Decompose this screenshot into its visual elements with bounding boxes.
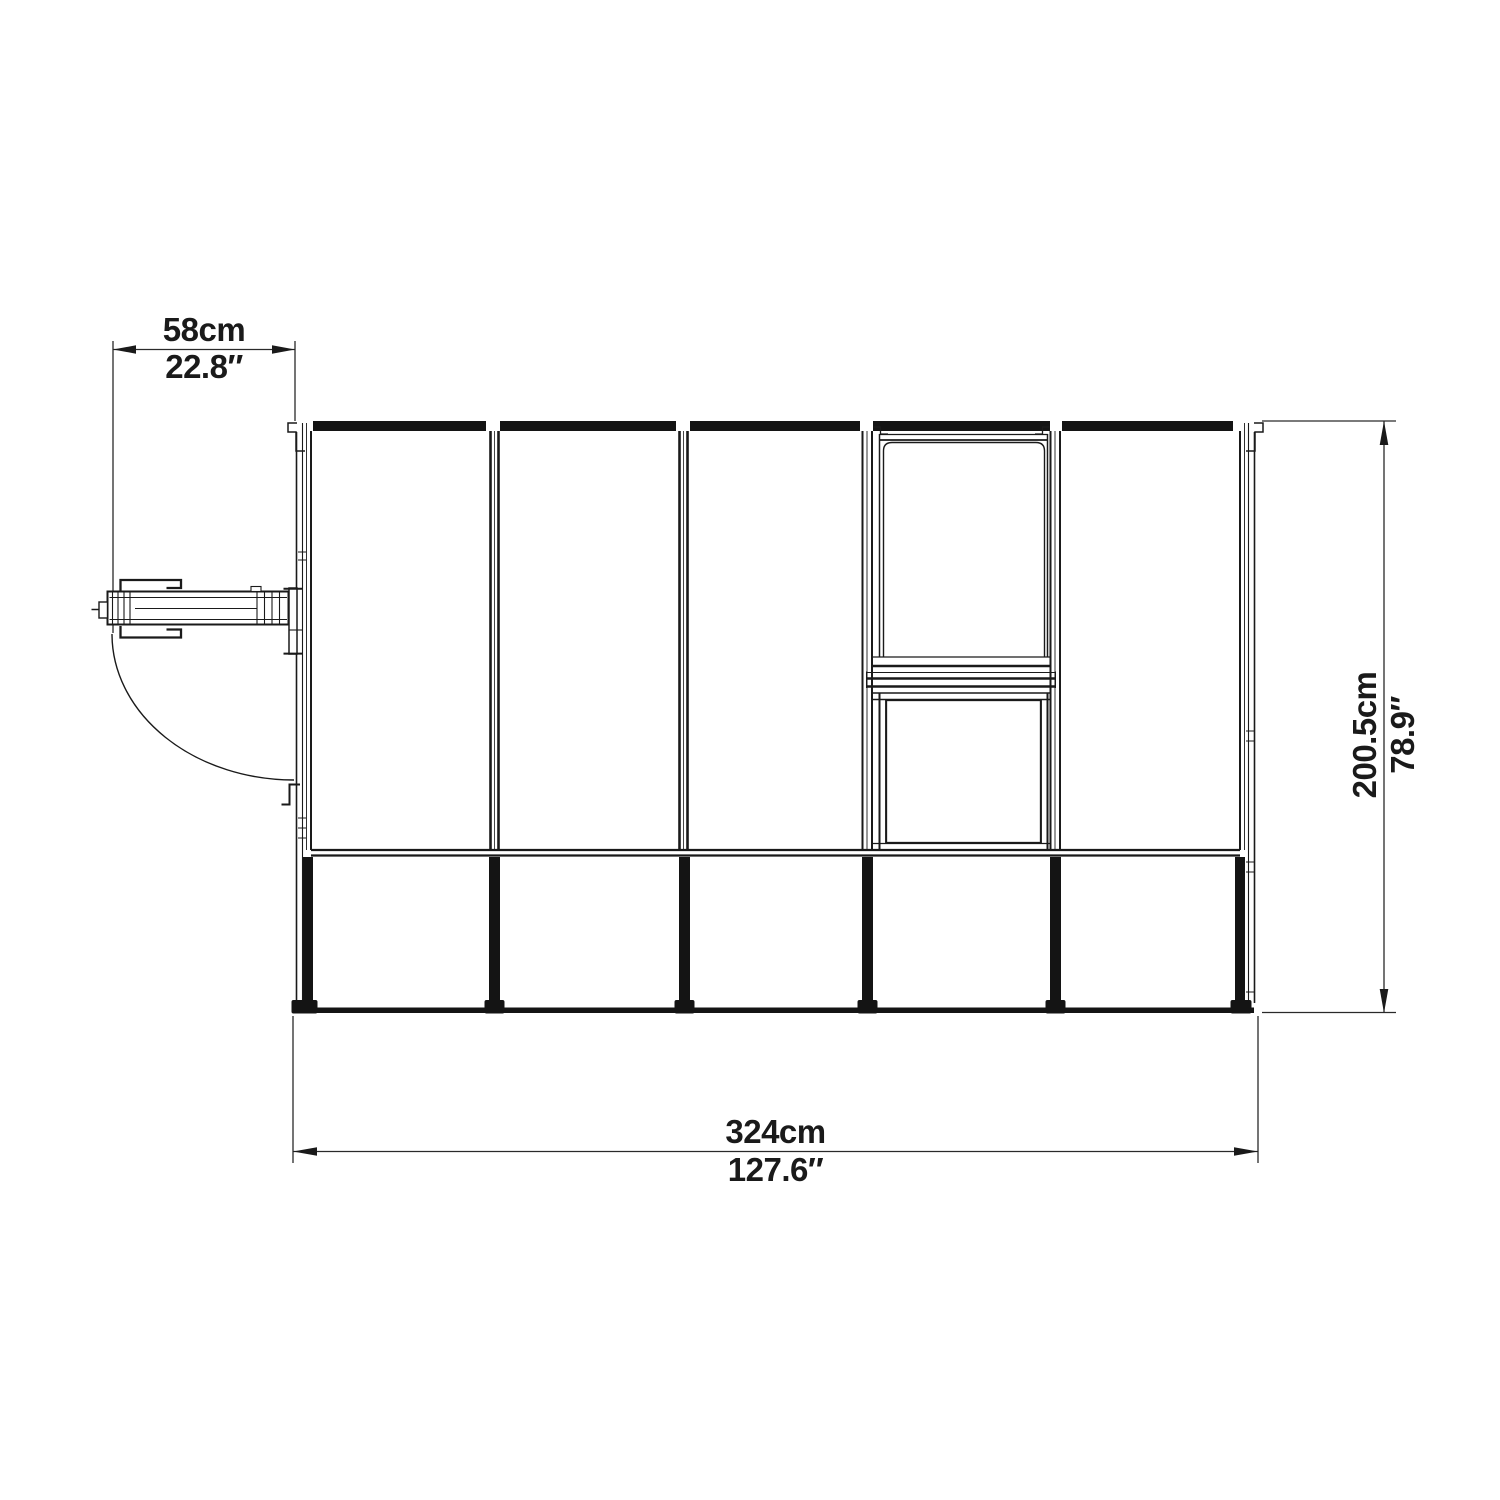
- greenhouse-dimension-diagram: 58cm 22.8″ 324cm 127.6″ 200.5cm 78.9″: [0, 0, 1500, 1500]
- door-edge-cap: [99, 602, 108, 618]
- top-rail: [313, 421, 1233, 431]
- vent-sill-bar: [866, 672, 1056, 689]
- dimension-label-overall-width: 324cm 127.6″: [293, 1113, 1258, 1189]
- upper-mullion-1: [491, 431, 499, 850]
- arrowhead-top: [1380, 421, 1389, 445]
- line-drawing: [0, 0, 1500, 1500]
- upper-mullion-2: [680, 431, 688, 850]
- door-roller-bump: [251, 587, 261, 592]
- door-opening-imperial: 22.8″: [113, 348, 295, 385]
- overall-width-metric: 324cm: [293, 1113, 1258, 1151]
- arrowhead-bottom: [1380, 989, 1389, 1013]
- roof-vent-lower-window: [873, 693, 1050, 850]
- dimension-label-overall-depth: 200.5cm 78.9″: [1346, 625, 1422, 845]
- dimension-label-door-opening: 58cm 22.8″: [113, 311, 295, 385]
- door-assembly: [92, 580, 303, 805]
- base-posts: [292, 857, 1255, 1014]
- overall-depth-metric: 200.5cm: [1346, 625, 1384, 845]
- door-handle-bottom: [121, 626, 182, 638]
- overall-depth-imperial: 78.9″: [1384, 625, 1422, 845]
- overall-width-imperial: 127.6″: [293, 1151, 1258, 1189]
- vent-bay-frame-right: [1051, 431, 1061, 850]
- door-opening-metric: 58cm: [113, 311, 295, 348]
- greenhouse-structure: [288, 421, 1263, 1014]
- base-rail: [298, 1008, 1254, 1014]
- vent-bay-frame-left: [863, 431, 873, 850]
- door-handle-top: [121, 580, 182, 591]
- roof-vent-upper-window: [873, 427, 1050, 666]
- mid-rail: [311, 850, 1240, 856]
- door-swing-arc: [112, 634, 294, 780]
